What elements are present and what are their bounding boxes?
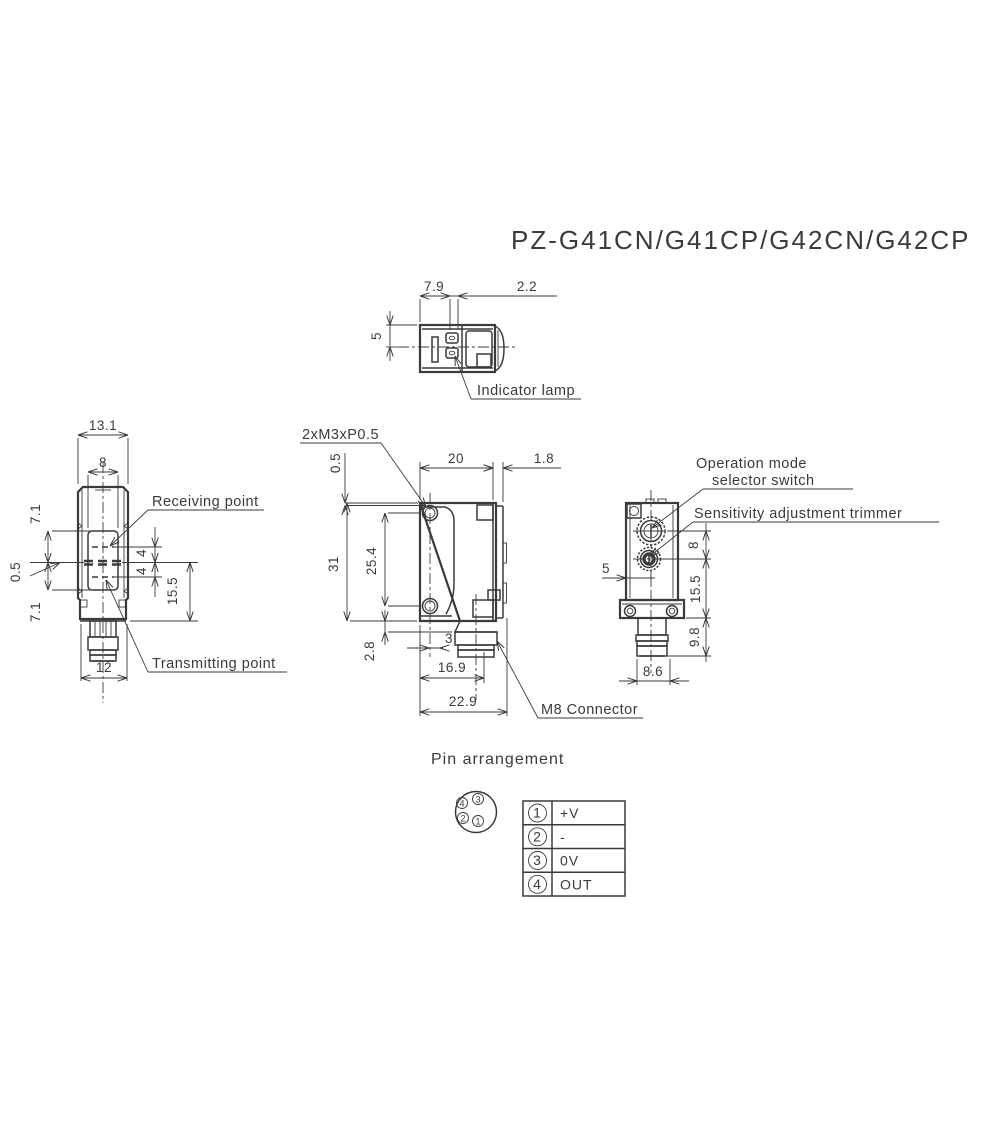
dim-7-1-lower: 7.1	[28, 602, 43, 622]
side-view-recess	[445, 507, 454, 614]
dim-15-5-front: 15.5	[165, 577, 180, 605]
pin-signal-2: -	[560, 829, 566, 845]
indicator-lamp-label: Indicator lamp	[477, 383, 575, 399]
pin-number-4: 4	[533, 876, 542, 892]
rear-view-body	[620, 490, 684, 673]
screw-hole-leader	[381, 443, 426, 507]
indicator-lamp-leader	[455, 356, 471, 399]
dim-0-5-gap: 0.5	[8, 562, 23, 582]
dim-0-5-top: 0.5	[328, 453, 343, 473]
front-view-dimensions: 13.1 8 7.1 7.1 0.5	[8, 418, 287, 681]
svg-text:1: 1	[475, 817, 480, 827]
pin-table-row-4: 4 OUT	[529, 875, 593, 893]
dim-13-1: 13.1	[89, 418, 117, 433]
dim-5-top: 5	[369, 332, 384, 340]
sensitivity-label: Sensitivity adjustment trimmer	[694, 506, 902, 522]
svg-text:3: 3	[475, 795, 480, 805]
dim-16-9: 16.9	[438, 660, 466, 675]
top-view-end-cap	[495, 326, 504, 371]
transmitting-point-label: Transmitting point	[152, 656, 276, 672]
dim-31: 31	[326, 556, 341, 572]
top-view-body	[398, 325, 516, 372]
pin-arrangement-title: Pin arrangement	[431, 751, 564, 768]
dim-9-8: 9.8	[687, 627, 702, 647]
screw-hole-label: 2xM3xP0.5	[302, 427, 379, 443]
rear-view-dimensions: Operation mode selector switch Sensitivi…	[602, 456, 939, 685]
top-view-window-step	[477, 354, 491, 367]
m8-connector-leader	[497, 641, 538, 718]
pin-signal-3: 0V	[560, 853, 579, 869]
model-title: PZ-G41CN/G41CP/G42CN/G42CP	[511, 225, 970, 255]
receiving-point-label: Receiving point	[152, 494, 259, 510]
dim-1-8: 1.8	[534, 451, 554, 466]
operation-mode-label-line2: selector switch	[712, 473, 815, 489]
face-pin-3: 3	[473, 794, 484, 805]
dim-8: 8	[99, 455, 107, 470]
dim-4-upper: 4	[134, 549, 149, 557]
side-view-dimensions: 2xM3xP0.5 0.5 20 1.8	[300, 427, 643, 718]
dim-2-2: 2.2	[517, 279, 537, 294]
technical-drawing: PZ-G41CN/G41CP/G42CN/G42CP	[0, 0, 1000, 1122]
beam-gap-leader	[30, 563, 60, 577]
top-view-slot	[432, 337, 438, 362]
dim-4-lower: 4	[134, 567, 149, 575]
indicator-lamp-1	[446, 333, 458, 343]
dim-20: 20	[448, 451, 464, 466]
dim-25-4: 25.4	[364, 547, 379, 575]
svg-text:2: 2	[460, 814, 465, 824]
front-view: 13.1 8 7.1 7.1 0.5	[8, 418, 287, 703]
pin-signal-4: OUT	[560, 876, 593, 892]
pin-signal-1: +V	[560, 805, 580, 821]
rear-view-connector	[636, 618, 668, 656]
rear-view: Operation mode selector switch Sensitivi…	[602, 456, 939, 685]
pin-arrangement: Pin arrangement 3 4 2 1	[431, 751, 625, 896]
pin-table-row-2: 2 -	[529, 828, 566, 846]
side-view-top-tab	[477, 505, 493, 520]
drawing-page: PZ-G41CN/G41CP/G42CN/G42CP	[0, 0, 1000, 1122]
dim-15-5-rear: 15.5	[688, 575, 703, 603]
dim-7-1-upper: 7.1	[28, 504, 43, 524]
operation-mode-label-line1: Operation mode	[696, 456, 807, 472]
side-view-m8-connector	[455, 594, 497, 700]
side-view: 2xM3xP0.5 0.5 20 1.8	[300, 427, 643, 718]
dim-12: 12	[96, 660, 112, 675]
pin-number-2: 2	[533, 828, 542, 844]
pin-table-row-3: 3 0V	[529, 852, 580, 870]
pin-number-1: 1	[533, 805, 542, 821]
top-view: 7.9 2.2 5 Indicator lamp	[369, 279, 581, 399]
dim-5-rear: 5	[602, 561, 610, 576]
top-view-window	[466, 331, 492, 367]
dim-2-8: 2.8	[362, 641, 377, 661]
dim-8-6: 8.6	[643, 664, 663, 679]
dim-22-9: 22.9	[449, 694, 477, 709]
dim-7-9: 7.9	[424, 279, 444, 294]
m8-connector-label: M8 Connector	[541, 702, 638, 718]
svg-text:4: 4	[459, 799, 464, 809]
face-pin-1: 1	[473, 816, 484, 827]
pin-table-row-1: 1 +V	[529, 804, 580, 822]
top-view-dimensions: 7.9 2.2 5 Indicator lamp	[369, 279, 581, 399]
dim-8-rear: 8	[686, 541, 701, 549]
pin-number-3: 3	[533, 852, 542, 868]
indicator-lamp-2	[446, 348, 458, 358]
connector-face: 3 4 2 1	[456, 792, 497, 833]
pin-table: 1 +V 2 - 3 0V 4 OUT	[523, 801, 625, 896]
face-pin-2: 2	[458, 813, 469, 824]
rear-view-flange	[620, 600, 684, 618]
dim-3: 3	[445, 631, 453, 646]
